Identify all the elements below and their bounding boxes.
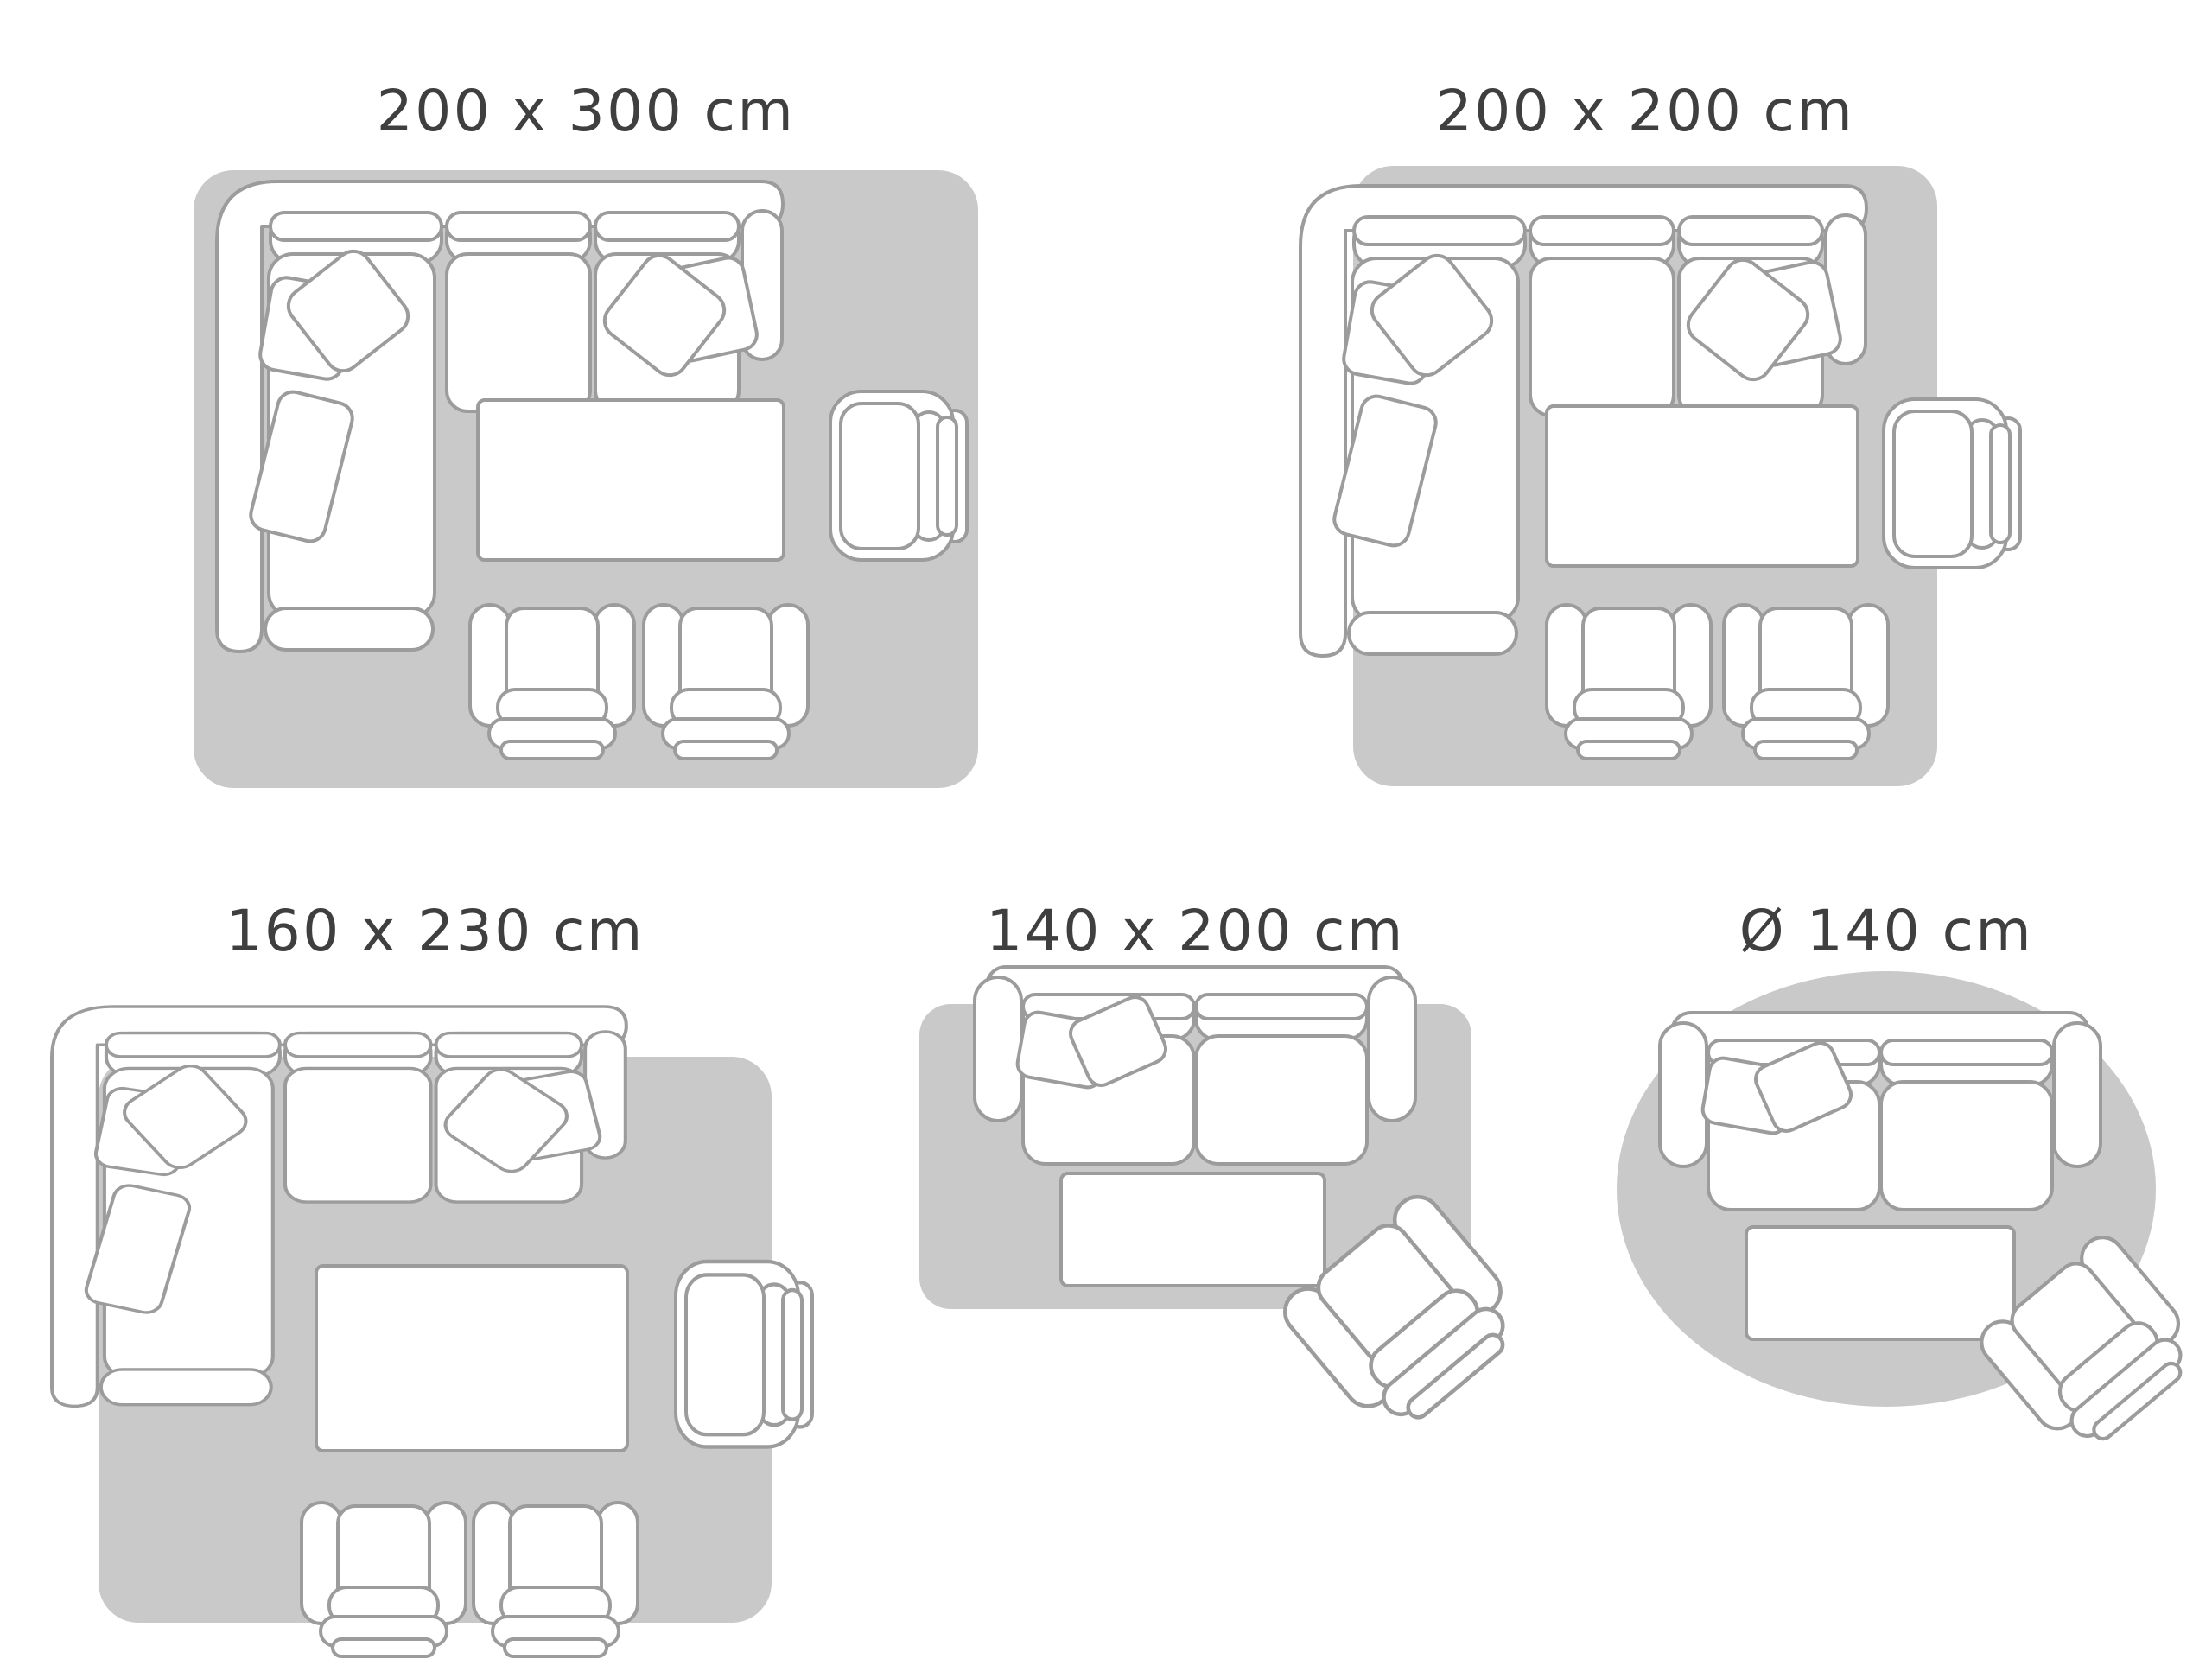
lounge-chair [474,1503,638,1656]
diagram-200x300 [194,170,978,788]
armchair [830,391,967,560]
two-seat-sofa [1660,1013,2101,1210]
coffee-table [1547,406,1858,566]
diagram-circle-140 [1617,971,2209,1464]
lounge-chair [302,1503,466,1656]
armchair [676,1262,812,1447]
coffee-table [1746,1227,2014,1339]
coffee-table [1061,1173,1325,1286]
coffee-table [316,1266,627,1451]
lounge-chair [1547,605,1711,759]
two-seat-sofa [975,967,1415,1164]
coffee-table [478,400,784,560]
lounge-chair [470,605,634,759]
diagram-200x200 [1300,166,2020,786]
rug-size-guide: 200 x 300 cm 200 x 200 cm 160 x 230 cm 1… [0,0,2212,1659]
armchair [1884,399,2020,568]
lounge-chair [1724,605,1888,759]
room-illustrations [0,0,2212,1659]
diagram-140x200 [919,967,1534,1445]
diagram-160x230 [52,1007,812,1656]
lounge-chair [644,605,808,759]
